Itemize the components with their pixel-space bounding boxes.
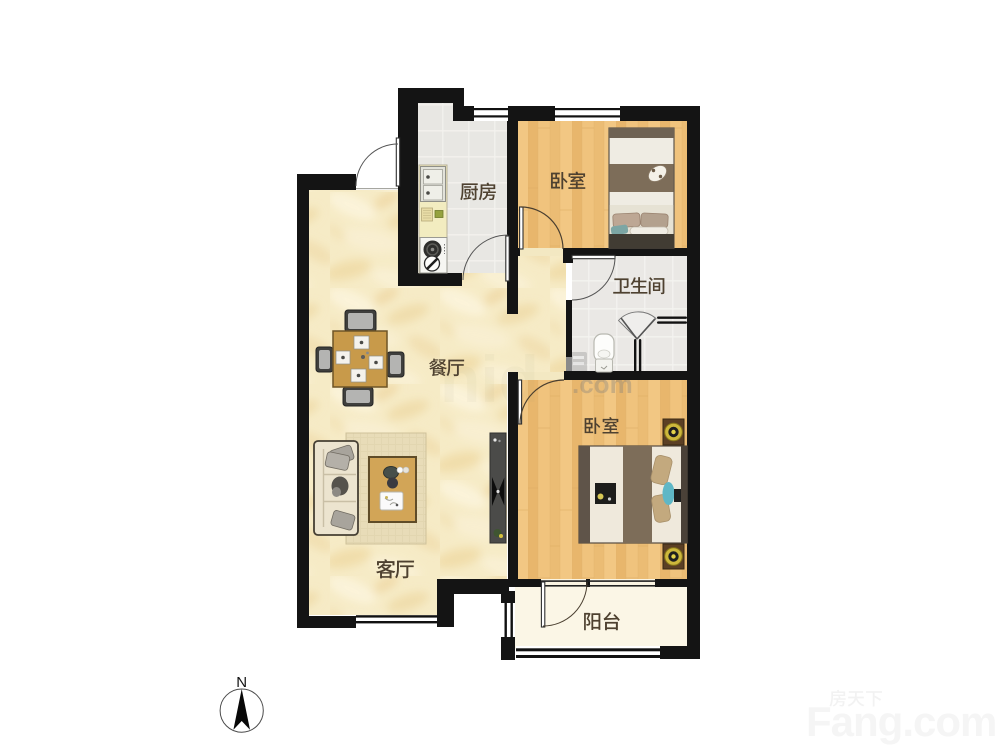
svg-text:N: N — [236, 674, 247, 691]
svg-text:Fang.com: Fang.com — [806, 698, 996, 745]
